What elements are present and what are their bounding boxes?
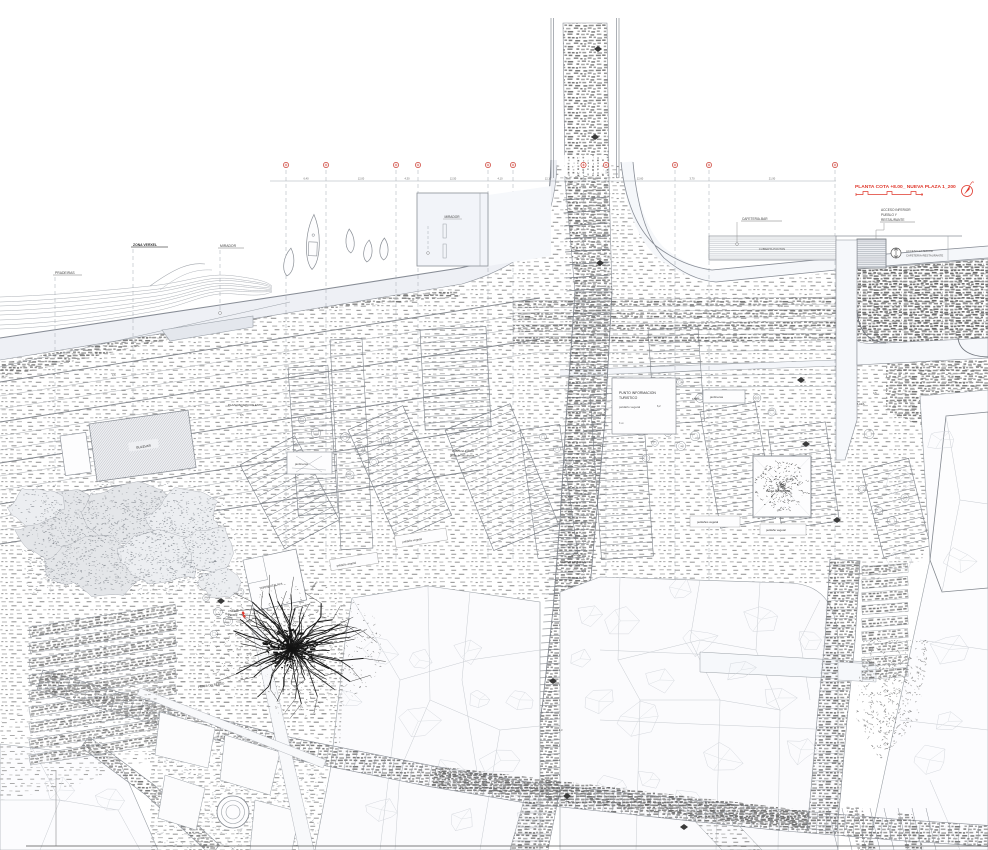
svg-text:ZONA VERXEL: ZONA VERXEL	[133, 243, 157, 247]
svg-text:CAMINO DE SIRGADO: CAMINO DE SIRGADO	[560, 560, 590, 564]
svg-text:4,10: 4,10	[497, 177, 503, 181]
svg-text:PLAZA RECEPCION ENTR: PLAZA RECEPCION ENTR	[228, 403, 263, 407]
svg-text:12,50: 12,50	[450, 177, 457, 181]
svg-text:peldaño vegetal: peldaño vegetal	[766, 528, 786, 532]
svg-text:ACCESO INFERIOR: ACCESO INFERIOR	[881, 208, 911, 212]
svg-text:4,44: 4,44	[548, 776, 554, 780]
svg-text:MIRADOR: MIRADOR	[220, 244, 237, 248]
svg-text:jardin de esculturas: jardin de esculturas	[449, 454, 475, 458]
svg-text:8 un: 8 un	[619, 422, 624, 425]
svg-text:PUNTO INFORMACION: PUNTO INFORMACION	[619, 391, 656, 395]
svg-text:4,5: 4,5	[240, 413, 244, 417]
svg-text:4,6: 4,6	[112, 373, 116, 377]
svg-text:peldaño vegetal: peldaño vegetal	[619, 405, 641, 409]
svg-text:4,43: 4,43	[806, 821, 812, 825]
svg-text:CUBIERTA PONTON: CUBIERTA PONTON	[759, 247, 785, 251]
svg-text:5,40: 5,40	[778, 304, 784, 308]
svg-text:12,60: 12,60	[637, 177, 644, 181]
svg-text:CAFETERIA-BAR: CAFETERIA-BAR	[742, 217, 768, 221]
svg-text:VIVEIRO: VIVEIRO	[228, 609, 239, 613]
svg-text:N: N	[972, 180, 974, 184]
svg-text:TURISTICO: TURISTICO	[619, 396, 638, 400]
svg-text:21,90: 21,90	[769, 177, 776, 181]
svg-text:3,70: 3,70	[689, 177, 695, 181]
svg-text:ACCESO EXTERIOR: ACCESO EXTERIOR	[906, 249, 933, 253]
svg-text:6,20: 6,20	[592, 177, 598, 181]
svg-text:PUEBLO Y: PUEBLO Y	[881, 213, 898, 217]
svg-text:RESTAURANTE: RESTAURANTE	[881, 218, 905, 222]
svg-text:5,40: 5,40	[572, 351, 578, 355]
svg-text:PLAZA ELEVADA: PLAZA ELEVADA	[452, 449, 474, 453]
svg-text:6,50: 6,50	[692, 397, 698, 401]
svg-text:12,10: 12,10	[545, 177, 552, 181]
svg-text:jardineras: jardineras	[709, 395, 724, 399]
svg-text:4,5: 4,5	[873, 391, 877, 395]
svg-text:12,00: 12,00	[358, 177, 365, 181]
svg-text:PRADEIRAS: PRADEIRAS	[55, 271, 75, 275]
svg-text:peldaños vegetal: peldaños vegetal	[697, 520, 719, 524]
svg-text:6,2: 6,2	[657, 404, 661, 408]
svg-text:-4,3: -4,3	[558, 728, 563, 732]
svg-text:5,00: 5,00	[510, 429, 516, 433]
svg-text:6,40: 6,40	[303, 177, 309, 181]
svg-text:PLAZA DO ARBORE: PLAZA DO ARBORE	[766, 489, 790, 493]
svg-text:4,30: 4,30	[404, 177, 410, 181]
svg-text:MIRADOR: MIRADOR	[444, 215, 460, 219]
svg-text:PLANTA COTA +8.00_ NUEVA PLAZA: PLANTA COTA +8.00_ NUEVA PLAZA 1_200	[855, 184, 956, 190]
svg-text:PEDRO: PEDRO	[228, 613, 237, 617]
svg-text:CAFETERIA-RESTAURANTE: CAFETERIA-RESTAURANTE	[906, 254, 943, 258]
